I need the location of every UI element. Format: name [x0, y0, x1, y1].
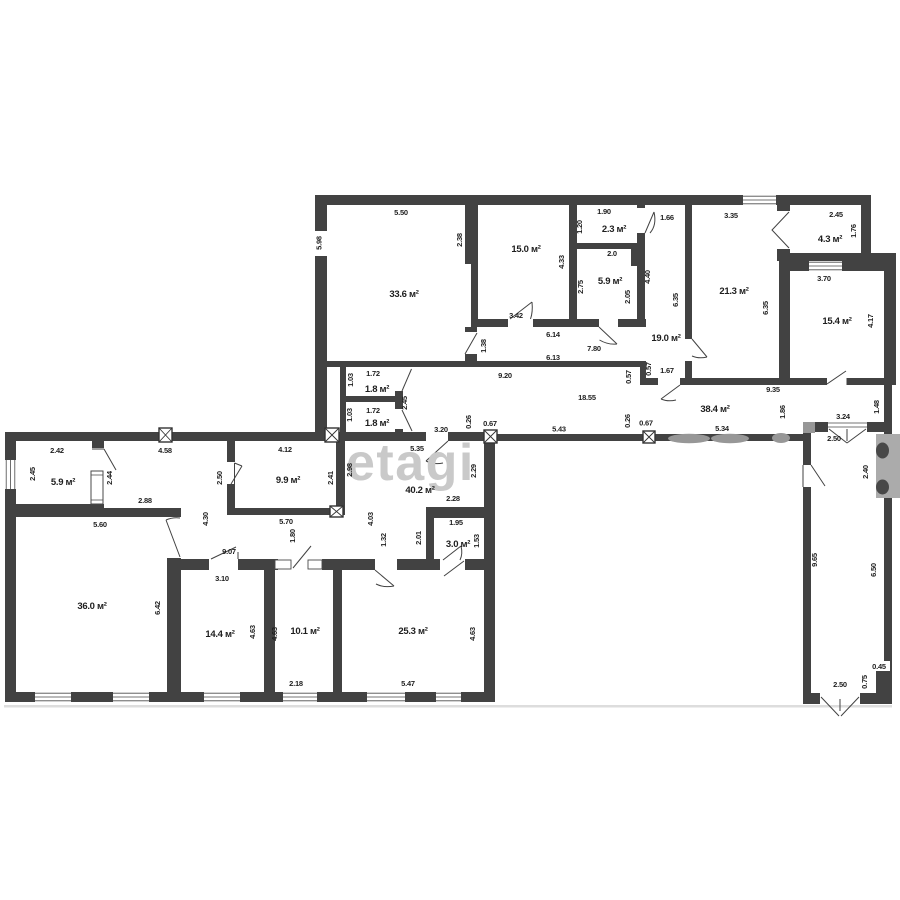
svg-text:4.12: 4.12 [278, 445, 292, 454]
svg-text:2.45: 2.45 [829, 210, 843, 219]
svg-text:9.35: 9.35 [766, 385, 780, 394]
svg-text:6.13: 6.13 [546, 353, 560, 362]
svg-text:9.65: 9.65 [810, 553, 819, 567]
svg-text:7.80: 7.80 [587, 344, 601, 353]
svg-text:3.24: 3.24 [836, 412, 851, 421]
svg-text:2.3 м²: 2.3 м² [602, 224, 626, 235]
svg-text:1.48: 1.48 [872, 400, 881, 414]
svg-text:2.44: 2.44 [105, 470, 114, 485]
svg-text:4.3 м²: 4.3 м² [818, 234, 842, 245]
svg-text:1.66: 1.66 [660, 213, 674, 222]
svg-text:2.50: 2.50 [215, 471, 224, 485]
svg-text:0.57: 0.57 [624, 370, 633, 384]
svg-text:1.03: 1.03 [346, 373, 355, 387]
svg-text:1.8 м²: 1.8 м² [365, 384, 389, 395]
svg-text:10.1 м²: 10.1 м² [290, 626, 319, 637]
svg-text:4.30: 4.30 [201, 512, 210, 526]
svg-text:18.55: 18.55 [578, 393, 596, 402]
svg-text:0.26: 0.26 [464, 415, 473, 429]
svg-text:6.35: 6.35 [761, 301, 770, 315]
svg-text:5.50: 5.50 [394, 208, 408, 217]
svg-text:19.0 м²: 19.0 м² [651, 333, 680, 344]
svg-text:0.45: 0.45 [872, 662, 886, 671]
svg-text:5.43: 5.43 [552, 425, 566, 434]
svg-text:1.80: 1.80 [288, 529, 297, 543]
svg-text:2.01: 2.01 [414, 531, 423, 545]
svg-text:2.42: 2.42 [50, 446, 64, 455]
svg-text:9.9 м²: 9.9 м² [276, 475, 300, 486]
svg-text:6.35: 6.35 [671, 293, 680, 307]
svg-text:15.0 м²: 15.0 м² [511, 244, 540, 255]
svg-text:2.05: 2.05 [623, 290, 632, 304]
svg-text:1.95: 1.95 [449, 518, 463, 527]
svg-text:1.67: 1.67 [660, 366, 674, 375]
svg-text:36.0 м²: 36.0 м² [77, 601, 106, 612]
svg-text:3.0 м²: 3.0 м² [446, 539, 470, 550]
svg-text:4.63: 4.63 [248, 625, 257, 639]
svg-text:1.90: 1.90 [597, 207, 611, 216]
svg-text:0.75: 0.75 [860, 675, 869, 689]
svg-text:2.41: 2.41 [326, 471, 335, 485]
svg-text:5.34: 5.34 [715, 424, 730, 433]
svg-text:40.2 м²: 40.2 м² [405, 485, 434, 496]
svg-text:9.07: 9.07 [222, 547, 236, 556]
svg-text:1.72: 1.72 [366, 369, 380, 378]
svg-text:2.50: 2.50 [827, 434, 841, 443]
svg-text:1.86: 1.86 [778, 405, 787, 419]
svg-text:4.33: 4.33 [557, 255, 566, 269]
svg-text:2.38: 2.38 [455, 233, 464, 247]
svg-text:33.6 м²: 33.6 м² [389, 289, 418, 300]
svg-text:4.17: 4.17 [866, 314, 875, 328]
svg-text:5.60: 5.60 [93, 520, 107, 529]
svg-text:5.9 м²: 5.9 м² [51, 477, 75, 488]
svg-text:4.03: 4.03 [366, 512, 375, 526]
svg-text:21.3 м²: 21.3 м² [719, 286, 748, 297]
svg-text:9.20: 9.20 [498, 371, 512, 380]
svg-text:1.38: 1.38 [479, 339, 488, 353]
svg-text:1.53: 1.53 [472, 534, 481, 548]
svg-text:6.14: 6.14 [546, 330, 561, 339]
svg-text:15.4 м²: 15.4 м² [822, 316, 851, 327]
svg-text:1.8 м²: 1.8 м² [365, 418, 389, 429]
svg-text:2.0: 2.0 [607, 249, 617, 258]
svg-text:2.40: 2.40 [861, 465, 870, 479]
svg-text:1.76: 1.76 [849, 224, 858, 238]
svg-text:3.42: 3.42 [509, 311, 523, 320]
svg-text:2.75: 2.75 [576, 280, 585, 294]
svg-text:0.67: 0.67 [483, 419, 497, 428]
svg-text:5.70: 5.70 [279, 517, 293, 526]
svg-text:0.26: 0.26 [623, 414, 632, 428]
svg-text:2.50: 2.50 [833, 680, 847, 689]
svg-text:1.32: 1.32 [379, 533, 388, 547]
svg-text:5.35: 5.35 [410, 444, 424, 453]
svg-text:3.35: 3.35 [724, 211, 738, 220]
svg-text:2.28: 2.28 [446, 494, 460, 503]
svg-text:3.10: 3.10 [215, 574, 229, 583]
svg-text:1.72: 1.72 [366, 406, 380, 415]
svg-text:2.29: 2.29 [469, 464, 478, 478]
svg-text:14.4 м²: 14.4 м² [205, 629, 234, 640]
svg-text:0.67: 0.67 [639, 419, 653, 428]
svg-text:2.45: 2.45 [28, 467, 37, 481]
svg-text:1.20: 1.20 [575, 220, 584, 234]
svg-text:3.70: 3.70 [817, 274, 831, 283]
svg-text:4.63: 4.63 [270, 627, 279, 641]
svg-text:etagi: etagi [346, 434, 475, 492]
svg-text:2.45: 2.45 [400, 396, 409, 410]
svg-text:38.4 м²: 38.4 м² [700, 404, 729, 415]
svg-text:4.40: 4.40 [643, 270, 652, 284]
svg-text:3.20: 3.20 [434, 425, 448, 434]
svg-text:1.03: 1.03 [345, 408, 354, 422]
svg-text:5.47: 5.47 [401, 679, 415, 688]
svg-text:6.42: 6.42 [153, 601, 162, 615]
svg-text:5.9 м²: 5.9 м² [598, 276, 622, 287]
svg-text:6.50: 6.50 [869, 563, 878, 577]
svg-text:25.3 м²: 25.3 м² [398, 626, 427, 637]
svg-text:2.18: 2.18 [289, 679, 303, 688]
svg-text:4.63: 4.63 [468, 627, 477, 641]
svg-text:5.98: 5.98 [315, 236, 324, 250]
svg-text:4.58: 4.58 [158, 446, 172, 455]
svg-text:0.57: 0.57 [644, 362, 653, 376]
svg-text:2.88: 2.88 [138, 496, 152, 505]
svg-text:2.98: 2.98 [345, 463, 354, 477]
